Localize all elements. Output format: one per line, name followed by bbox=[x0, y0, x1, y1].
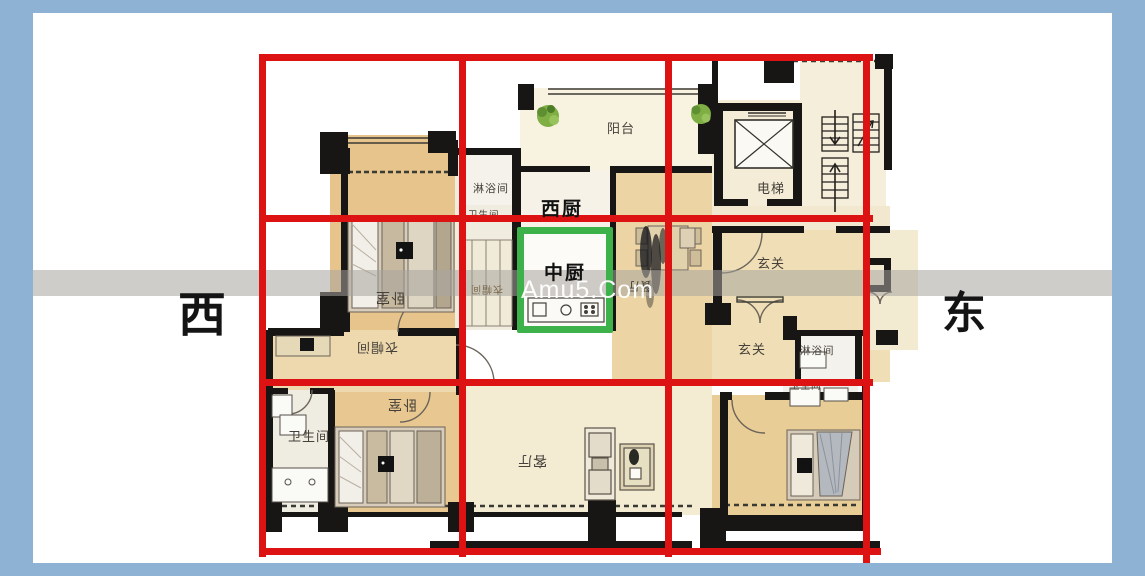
room-label-shower-1: 淋浴间 bbox=[473, 180, 509, 196]
grid-line-vertical-2 bbox=[459, 54, 466, 557]
grid-line-vertical-4 bbox=[863, 54, 870, 575]
room-label-shower-2: 淋浴间 bbox=[800, 343, 835, 358]
room-label-bedroom-tl: 卧室 bbox=[375, 288, 405, 308]
frame-bottom bbox=[0, 563, 1145, 576]
room-label-bathroom-bl: 卫生间 bbox=[288, 426, 330, 445]
room-label-foyer-1: 玄关 bbox=[757, 253, 785, 272]
grid-line-vertical-3 bbox=[665, 54, 672, 557]
room-label-closet-2: 衣帽间 bbox=[470, 283, 503, 298]
sofa-icon bbox=[585, 428, 615, 500]
grid-line-horizontal-1 bbox=[259, 54, 873, 61]
feng-shui-floor-plan: 阳台 淋浴间 卫生间 卧室 衣帽间 餐厅 电梯 玄关 玄关 淋浴间 卫生间 衣帽… bbox=[0, 0, 1145, 576]
room-label-living: 客厅 bbox=[517, 451, 547, 471]
west-kitchen-label: 西厨 bbox=[541, 194, 583, 221]
room-label-balcony: 阳台 bbox=[607, 118, 635, 137]
grid-line-vertical-1 bbox=[259, 54, 266, 557]
grid-line-horizontal-4 bbox=[259, 548, 881, 555]
compass-west-label: 西 bbox=[178, 292, 226, 340]
bed-bottom-right bbox=[787, 430, 860, 500]
frame-left bbox=[0, 0, 33, 576]
coffee-table-icon bbox=[620, 444, 654, 490]
watermark-text: Amu5.Com bbox=[521, 276, 654, 305]
frame-top bbox=[0, 0, 1145, 13]
grid-line-horizontal-3 bbox=[259, 379, 873, 386]
frame-right bbox=[1112, 0, 1145, 576]
elevator-shaft-icon bbox=[735, 113, 793, 168]
room-label-foyer-2: 玄关 bbox=[738, 339, 766, 358]
room-label-elevator: 电梯 bbox=[757, 178, 785, 197]
corridor-cabinet bbox=[276, 336, 330, 356]
foyer-cabinet bbox=[680, 228, 695, 248]
compass-east-label: 东 bbox=[942, 292, 986, 336]
bed-bottom-left bbox=[335, 427, 445, 507]
room-label-closet-1: 衣帽间 bbox=[356, 339, 398, 358]
room-label-bedroom-bl: 卧室 bbox=[387, 395, 417, 415]
